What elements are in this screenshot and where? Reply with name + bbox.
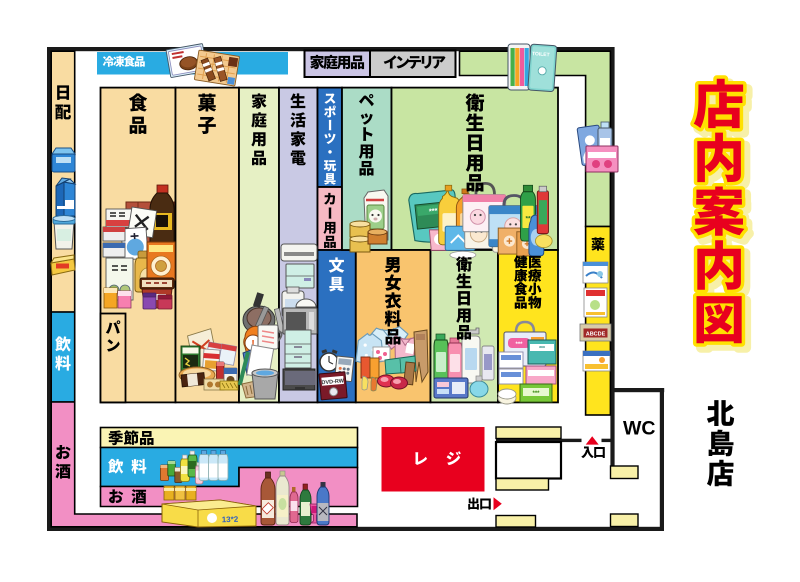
svg-text:***: ***	[429, 206, 439, 216]
svg-text:TOILET: TOILET	[532, 51, 550, 58]
svg-text:***: ***	[539, 346, 545, 352]
svg-text:***: ***	[532, 391, 540, 397]
svg-text:***: ***	[515, 342, 523, 348]
svg-text:ABCDE: ABCDE	[586, 332, 606, 338]
svg-text:13*2: 13*2	[222, 515, 239, 525]
svg-text:WC: WC	[623, 418, 656, 440]
